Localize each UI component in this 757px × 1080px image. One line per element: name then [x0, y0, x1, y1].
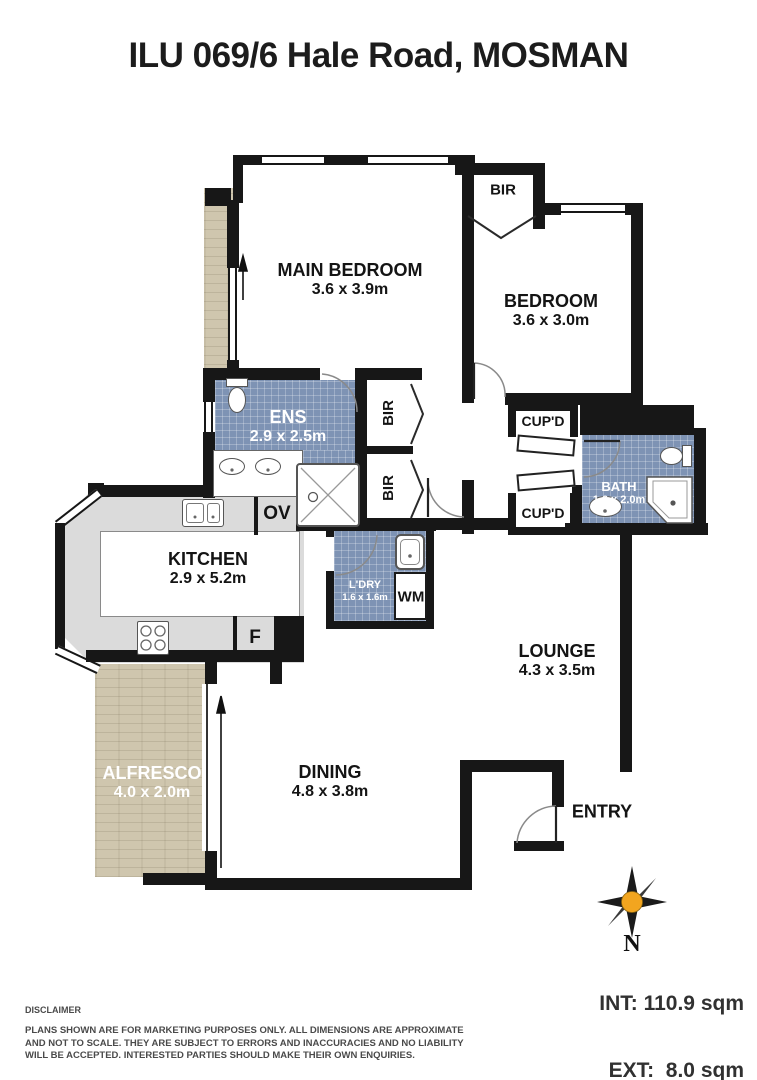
compass-rose: N — [594, 862, 672, 952]
disclaimer-heading: DISCLAIMER — [25, 1005, 470, 1015]
appliance-label-fridge: F — [249, 627, 261, 649]
closet-label-bir-lower: BIR — [380, 475, 398, 501]
door-leaves — [428, 363, 620, 843]
area-summary: INT: 110.9 sqm EXT: 8.0 sqm TOTAL AREA: … — [470, 956, 744, 1080]
shower-symbol-ens — [301, 468, 355, 522]
disclaimer-body: PLANS SHOWN ARE FOR MARKETING PURPOSES O… — [25, 1025, 470, 1063]
room-label-entry: ENTRY — [572, 802, 632, 823]
appliance-label-oven: OV — [263, 503, 290, 525]
room-label-ensuite: ENS 2.9 x 2.5m — [250, 407, 327, 447]
room-label-bedroom: BEDROOM 3.6 x 3.0m — [504, 291, 598, 331]
room-label-bathroom: BATH 1.6 x 2.0m — [593, 479, 646, 507]
room-label-lounge: LOUNGE 4.3 x 3.5m — [518, 641, 595, 681]
room-label-main-bedroom: MAIN BEDROOM 3.6 x 3.9m — [278, 260, 423, 300]
closet-label-bir-top: BIR — [490, 182, 516, 199]
corner-shower-bath — [647, 477, 692, 523]
closet-label-cupboard-upper: CUP'D — [522, 413, 565, 429]
room-label-dining: DINING 4.8 x 3.8m — [292, 762, 369, 802]
cooktop-burners — [141, 626, 165, 650]
room-label-kitchen: KITCHEN 2.9 x 5.2m — [168, 549, 248, 589]
room-label-laundry: L'DRY 1.6 x 1.6m — [342, 579, 387, 603]
disclaimer-block: DISCLAIMER PLANS SHOWN ARE FOR MARKETING… — [25, 1005, 470, 1063]
area-internal: INT: 110.9 sqm — [470, 992, 744, 1016]
appliance-label-washing-machine: WM — [398, 589, 425, 606]
compass-north-letter: N — [623, 931, 641, 952]
closet-label-cupboard-lower: CUP'D — [522, 505, 565, 521]
floorplan-page: ILU 069/6 Hale Road, MOSMAN — [0, 0, 757, 1080]
compass-center — [622, 892, 643, 913]
area-external: EXT: 8.0 sqm — [470, 1059, 744, 1080]
closet-label-bir-upper: BIR — [380, 400, 398, 426]
room-label-alfresco: ALFRESCO 4.0 x 2.0m — [103, 763, 202, 803]
